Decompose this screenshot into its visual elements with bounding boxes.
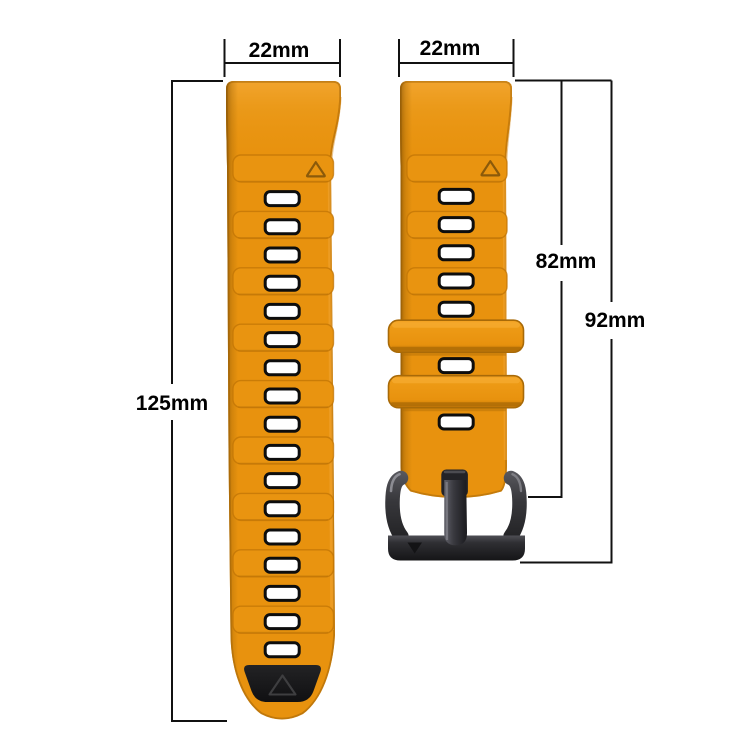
svg-text:22mm: 22mm	[420, 37, 481, 60]
svg-text:92mm: 92mm	[585, 309, 646, 332]
svg-text:125mm: 125mm	[136, 392, 208, 415]
svg-text:22mm: 22mm	[249, 39, 310, 62]
svg-text:82mm: 82mm	[536, 250, 597, 273]
